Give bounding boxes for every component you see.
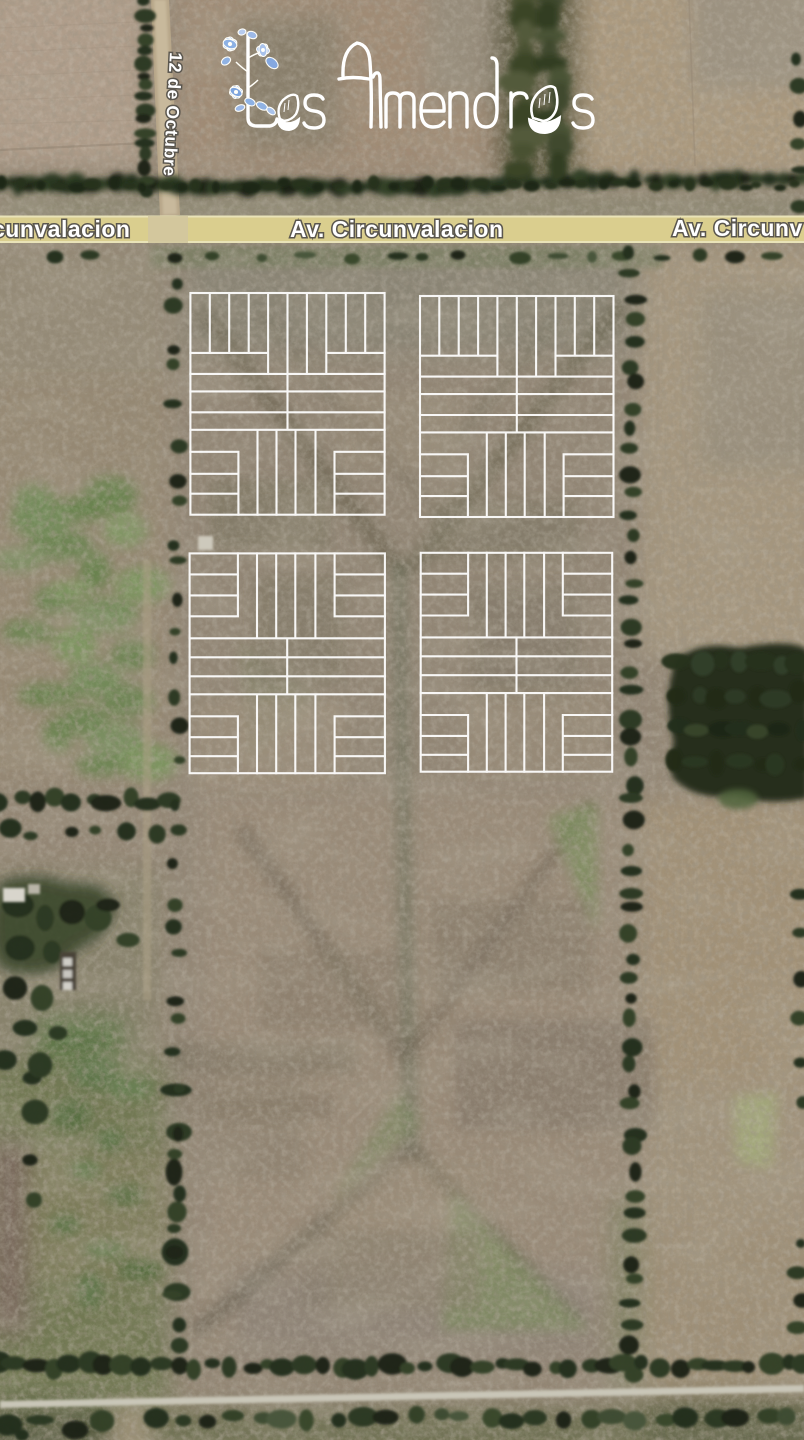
svg-text:Av. Circunv: Av. Circunv: [672, 215, 803, 241]
svg-text:cunvalacion: cunvalacion: [0, 216, 130, 242]
svg-text:Av. Circunvalacion: Av. Circunvalacion: [290, 216, 504, 242]
